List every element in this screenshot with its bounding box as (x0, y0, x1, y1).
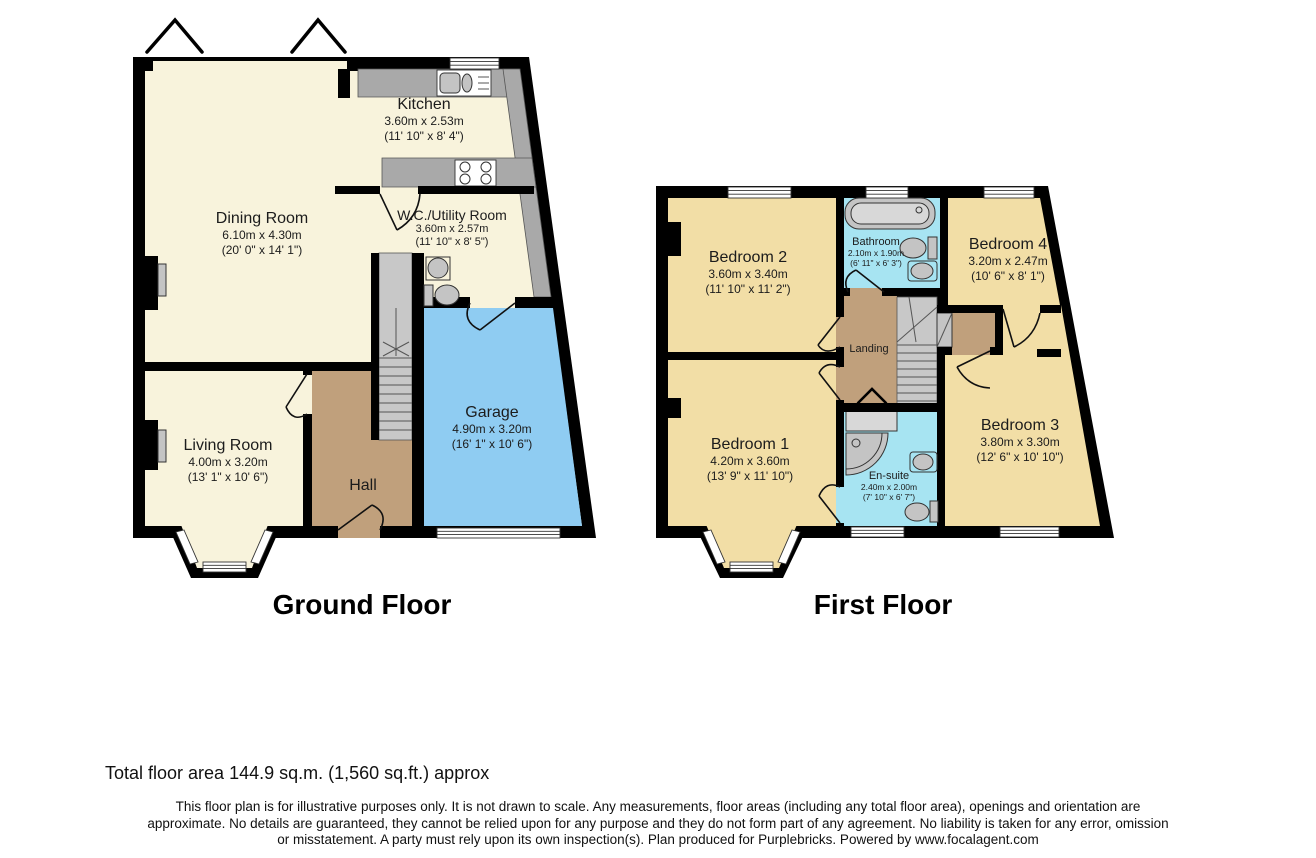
room-label-ensuite: En-suite 2.40m x 2.00m (7' 10" x 6' 7") (861, 470, 917, 502)
room-dim-metric: 4.00m x 3.20m (184, 455, 273, 470)
disclaimer-line: approximate. No details are guaranteed, … (0, 816, 1316, 833)
stairs-hatch (937, 313, 952, 347)
room-dim-imperial: (20' 0" x 14' 1") (216, 243, 308, 258)
bedroom2-window-icon (728, 187, 791, 198)
room-name: Hall (349, 477, 377, 495)
room-dim-metric: 2.10m x 1.90m (848, 248, 904, 258)
bedroom3-window-icon (1000, 527, 1059, 537)
ground-floor-title: Ground Floor (273, 589, 452, 621)
bathroom-window-icon (866, 187, 908, 198)
room-name: Bedroom 1 (707, 436, 793, 454)
floor-plan-page: Kitchen 3.60m x 2.53m (11' 10" x 8' 4") … (0, 0, 1316, 858)
room-label-wc-utility: W.C./Utility Room 3.60m x 2.57m (11' 10"… (397, 207, 507, 249)
room-label-bedroom2: Bedroom 2 3.60m x 3.40m (11' 10" x 11' 2… (705, 249, 790, 296)
bay-window-first (695, 522, 808, 578)
total-floor-area: Total floor area 144.9 sq.m. (1,560 sq.f… (105, 763, 489, 784)
room-dim-metric: 3.60m x 2.57m (397, 223, 507, 236)
room-name: Bathroom (848, 236, 904, 248)
first-floor-title: First Floor (814, 589, 952, 621)
stairs-first (897, 297, 937, 405)
wc-toilet-icon (424, 285, 459, 306)
room-name: Living Room (184, 437, 273, 455)
room-label-bedroom3: Bedroom 3 3.80m x 3.30m (12' 6" x 10' 10… (976, 417, 1063, 464)
room-dim-metric: 4.90m x 3.20m (452, 422, 532, 437)
disclaimer-line: This floor plan is for illustrative purp… (0, 799, 1316, 816)
opening-chevron-icon (147, 20, 202, 52)
disclaimer-line: or misstatement. A party must rely upon … (0, 832, 1316, 849)
ensuite-window-icon (851, 527, 904, 537)
room-label-garage: Garage 4.90m x 3.20m (16' 1" x 10' 6") (452, 404, 532, 451)
floor-plans-svg (0, 0, 1316, 740)
room-label-bedroom1: Bedroom 1 4.20m x 3.60m (13' 9" x 11' 10… (707, 436, 793, 483)
room-label-bathroom: Bathroom 2.10m x 1.90m (6' 11" x 6' 3") (848, 236, 904, 268)
wall-post (145, 57, 153, 71)
room-label-living-room: Living Room 4.00m x 3.20m (13' 1" x 10' … (184, 437, 273, 484)
room-dim-metric: 3.60m x 2.53m (384, 114, 464, 129)
opening-chevron-icon (292, 20, 345, 52)
bathroom-toilet-icon (900, 237, 937, 259)
bathtub-icon (845, 198, 935, 229)
room-name: Garage (452, 404, 532, 422)
room-name: Bedroom 2 (705, 249, 790, 267)
bedroom4-window-icon (984, 187, 1034, 198)
room-dim-imperial: (16' 1" x 10' 6") (452, 437, 532, 452)
room-name: Landing (849, 343, 888, 355)
room-dim-imperial: (12' 6" x 10' 10") (976, 450, 1063, 465)
sink-icon (437, 70, 491, 96)
kitchen-window-icon (450, 58, 499, 69)
room-label-dining-room: Dining Room 6.10m x 4.30m (20' 0" x 14' … (216, 210, 308, 257)
room-label-kitchen: Kitchen 3.60m x 2.53m (11' 10" x 8' 4") (384, 96, 464, 143)
room-dim-metric: 4.20m x 3.60m (707, 454, 793, 469)
room-dim-metric: 2.40m x 2.00m (861, 482, 917, 492)
cupboard (846, 411, 897, 431)
room-dim-imperial: (13' 9" x 11' 10") (707, 469, 793, 484)
room-name: Bedroom 4 (968, 236, 1047, 254)
room-dim-imperial: (11' 10" x 11' 2") (705, 282, 790, 297)
front-door-opening (338, 526, 380, 538)
room-label-bedroom4: Bedroom 4 3.20m x 2.47m (10' 6" x 8' 1") (968, 236, 1047, 283)
room-dim-imperial: (11' 10" x 8' 4") (384, 129, 464, 144)
room-name: Bedroom 3 (976, 417, 1063, 435)
garage-door-window (437, 528, 560, 538)
room-name: En-suite (861, 470, 917, 482)
room-dim-imperial: (11' 10" x 8' 5") (397, 236, 507, 249)
disclaimer: This floor plan is for illustrative purp… (0, 799, 1316, 849)
landing-alcove (952, 313, 995, 355)
room-dim-metric: 3.60m x 3.40m (705, 267, 790, 282)
room-dim-metric: 6.10m x 4.30m (216, 228, 308, 243)
stove-icon (455, 160, 496, 186)
top-opening (150, 61, 347, 70)
room-dim-metric: 3.80m x 3.30m (976, 435, 1063, 450)
room-name: Dining Room (216, 210, 308, 228)
room-label-landing: Landing (849, 343, 888, 355)
room-dim-imperial: (6' 11" x 6' 3") (848, 258, 904, 268)
bay-window-ground (168, 522, 281, 578)
ensuite-toilet-icon (905, 501, 938, 522)
room-dim-imperial: (7' 10" x 6' 7") (861, 492, 917, 502)
room-dim-imperial: (10' 6" x 8' 1") (968, 269, 1047, 284)
room-dim-imperial: (13' 1" x 10' 6") (184, 470, 273, 485)
room-dim-metric: 3.20m x 2.47m (968, 254, 1047, 269)
room-name: Kitchen (384, 96, 464, 114)
room-label-hall: Hall (349, 477, 377, 495)
room-name: W.C./Utility Room (397, 207, 507, 223)
